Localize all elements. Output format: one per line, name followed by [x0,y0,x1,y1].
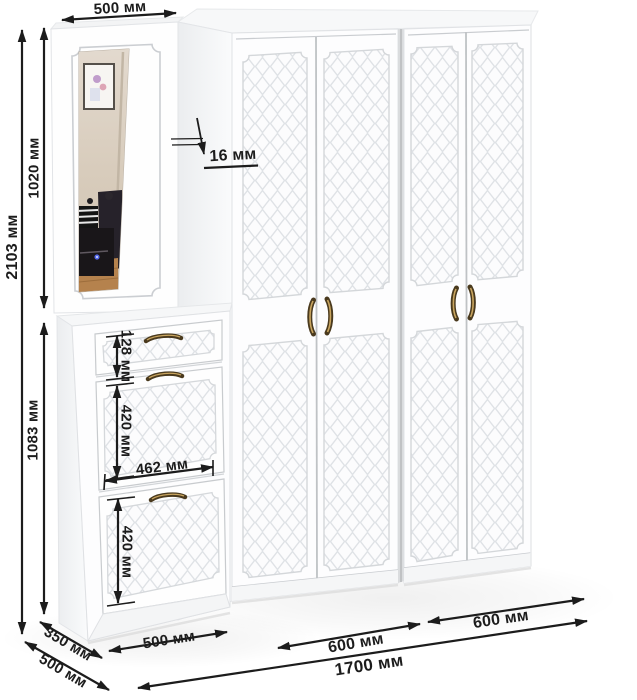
door-gap [466,32,467,568]
door-panel [411,46,458,285]
door-gap [316,37,317,586]
wardrobe-right [404,25,531,583]
dim-label-drawer-height: 128 мм [119,330,134,383]
dim-label-mirror-height: 1020 мм [27,137,42,198]
dim-label-panel-thickness: 16 мм [209,147,257,165]
door-panel [243,52,307,299]
door-panel [324,49,389,292]
dim-label-upper-door: 420 мм [119,405,134,458]
diagram-canvas [0,0,637,700]
door-panel [243,341,307,578]
picture-frame-reflection [84,64,114,109]
wardrobe-gap [398,29,404,583]
door-panel [411,328,458,562]
wardrobe-left [232,29,398,601]
door-panel [472,43,523,280]
dim-label-total-height: 2103 мм [5,214,21,279]
dim-label-lower-door: 420 мм [120,526,135,579]
furniture-dimension-diagram: 500 мм 2103 мм 1020 мм 1083 мм 128 мм 42… [0,0,637,700]
mirror-panel [51,17,183,313]
door-panel [472,321,523,553]
dim-label-top-width: 500 мм [93,0,146,17]
dim-label-cabinet-height: 1083 мм [26,399,41,460]
door-panel [324,334,389,571]
